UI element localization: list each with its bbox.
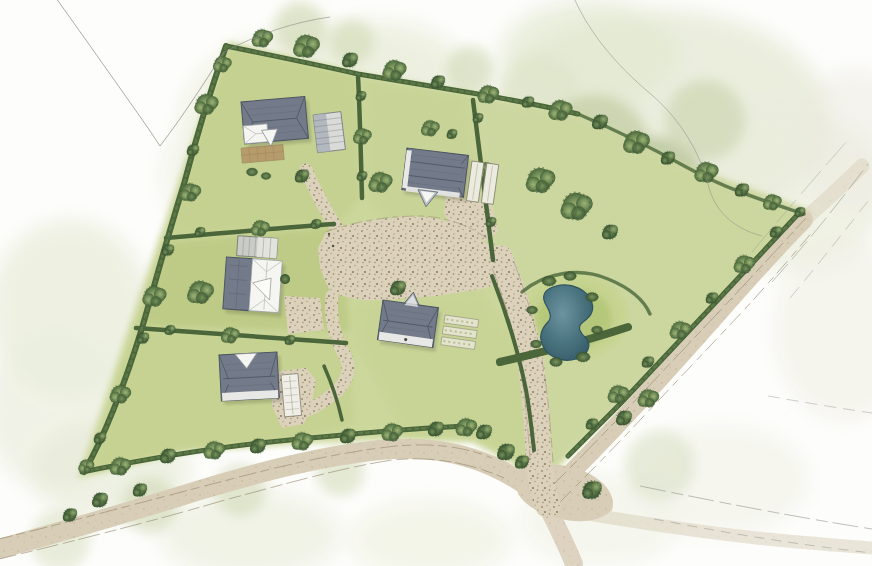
pond-shrub [586, 293, 599, 302]
house-3-barn-light-half [257, 237, 278, 258]
gate-post [332, 245, 334, 247]
house-4-garden-beds [441, 315, 479, 349]
gate-post [328, 233, 330, 235]
canopy-wash [625, 430, 695, 500]
pond-shrub [576, 352, 590, 362]
house-5-southwest [219, 352, 283, 405]
house-5-outbuilding [281, 374, 302, 417]
pond-shrub [526, 306, 537, 314]
watercolor-site-plan [0, 0, 872, 566]
shrub-icon [246, 168, 257, 176]
site-plan-illustration [0, 0, 872, 566]
shrub-icon [261, 173, 271, 180]
house-3-apron [284, 296, 324, 334]
pond-shrub [530, 340, 541, 348]
pond-shrub [550, 358, 563, 367]
pond-shrub [591, 326, 602, 334]
house-1-carport [313, 112, 345, 153]
canopy-wash [665, 80, 745, 160]
pond-shrub [564, 272, 577, 281]
pond-shrub [542, 276, 556, 286]
